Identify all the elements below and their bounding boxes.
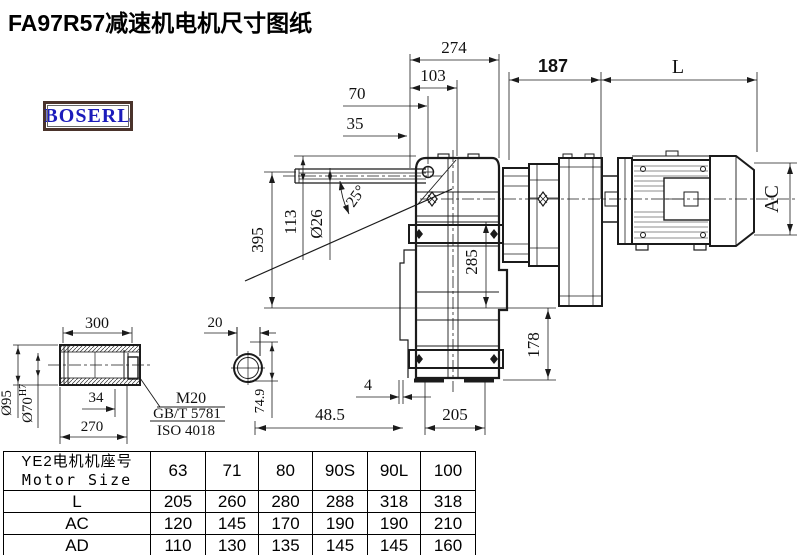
gearbox-body	[400, 154, 507, 381]
col-71: 71	[206, 452, 259, 491]
dim-4: 4	[364, 377, 372, 394]
dim-74-9: 74.9	[253, 389, 268, 414]
dim-285: 285	[462, 249, 481, 275]
cell: 130	[206, 535, 259, 555]
cell: 210	[421, 513, 476, 535]
cell: 145	[206, 513, 259, 535]
cell: 318	[421, 491, 476, 513]
centerlines	[48, 150, 795, 392]
dim-L: L	[672, 56, 684, 78]
bolt-thread-label: M20	[176, 390, 206, 407]
rod-section-detail	[231, 327, 265, 385]
dim-rod-dia: Ø26	[307, 209, 326, 238]
row-label-L: L	[4, 491, 151, 513]
cell: 170	[259, 513, 313, 535]
motor-size-table: YE2电机机座号 Motor Size 63 71 80 90S 90L 100…	[3, 451, 476, 555]
dim-bore70: Ø70	[20, 397, 36, 423]
dim-35: 35	[347, 114, 364, 133]
col-63: 63	[151, 452, 206, 491]
page: FA97R57减速机电机尺寸图纸 BOSERL	[0, 0, 800, 555]
dim-300: 300	[85, 315, 109, 332]
header-en: Motor Size	[4, 471, 150, 489]
dim-270: 270	[81, 419, 104, 435]
dim-205: 205	[442, 405, 468, 424]
cell: 280	[259, 491, 313, 513]
dim-103: 103	[420, 66, 446, 85]
dim-34: 34	[89, 390, 105, 406]
cell: 260	[206, 491, 259, 513]
cell: 145	[313, 535, 368, 555]
dim-178: 178	[524, 332, 543, 358]
dim-AC: AC	[761, 185, 783, 213]
table-header-row: YE2电机机座号 Motor Size 63 71 80 90S 90L 100	[4, 452, 476, 491]
dim-187: 187	[538, 56, 568, 76]
cell: 145	[368, 535, 421, 555]
table-row-AD: AD 110 130 135 145 145 160	[4, 535, 476, 555]
dim-bore-tol: H7	[18, 384, 29, 396]
bolt-std-gb-label: GB/T 5781	[153, 406, 221, 422]
header-cn: YE2电机机座号	[4, 453, 150, 472]
col-100: 100	[421, 452, 476, 491]
row-label-AD: AD	[4, 535, 151, 555]
cell: 135	[259, 535, 313, 555]
dim-70: 70	[349, 84, 366, 103]
dim-48-5: 48.5	[315, 405, 345, 424]
cell: 205	[151, 491, 206, 513]
col-90s: 90S	[313, 452, 368, 491]
table-row-AC: AC 120 145 170 190 190 210	[4, 513, 476, 535]
col-90l: 90L	[368, 452, 421, 491]
dim-395: 395	[248, 227, 267, 253]
cell: 190	[313, 513, 368, 535]
cell: 110	[151, 535, 206, 555]
table-header-motor-size: YE2电机机座号 Motor Size	[4, 452, 151, 491]
cell: 120	[151, 513, 206, 535]
dim-20: 20	[208, 315, 223, 331]
cell: 288	[313, 491, 368, 513]
row-label-AC: AC	[4, 513, 151, 535]
dim-274: 274	[441, 38, 467, 57]
cell: 160	[421, 535, 476, 555]
col-80: 80	[259, 452, 313, 491]
cell: 190	[368, 513, 421, 535]
cell: 318	[368, 491, 421, 513]
bolt-std-iso-label: ISO 4018	[157, 423, 215, 439]
dim-od95: Ø95	[0, 390, 15, 416]
dim-113: 113	[281, 210, 300, 235]
table-row-L: L 205 260 280 288 318 318	[4, 491, 476, 513]
motor	[618, 151, 754, 250]
